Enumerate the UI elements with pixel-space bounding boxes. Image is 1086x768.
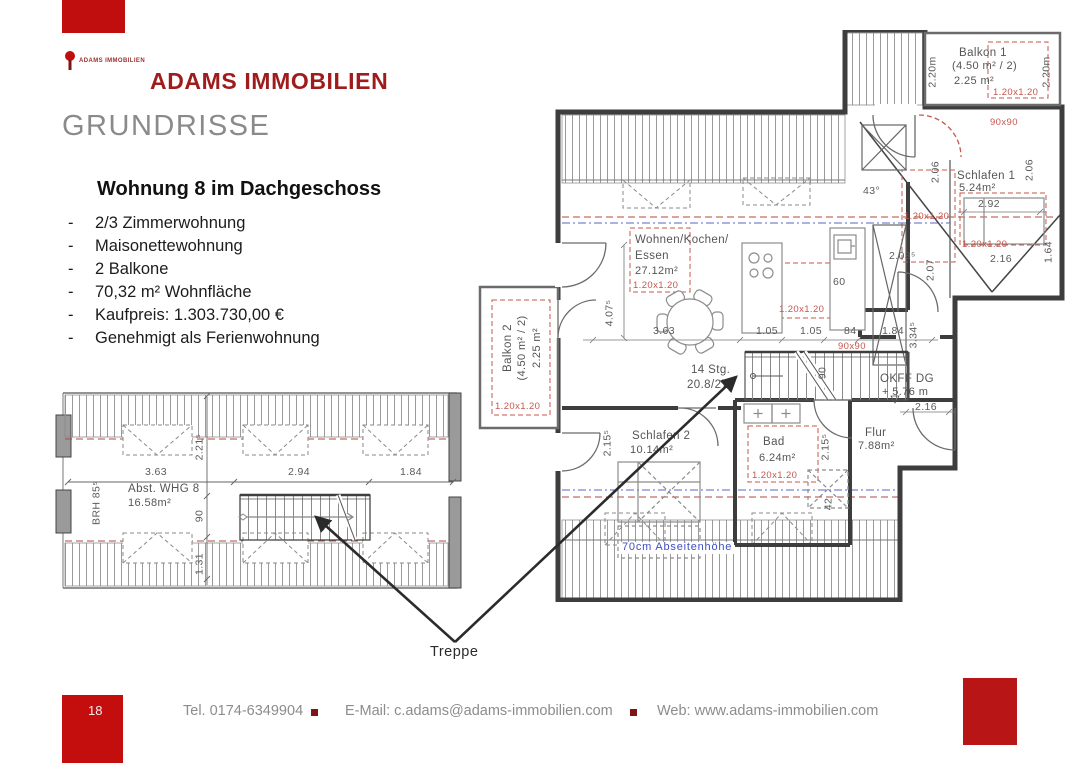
balkon2-area: 2.25 m²	[532, 328, 544, 368]
dim-label: 1.84	[400, 467, 422, 478]
footer-separator-icon	[630, 709, 637, 716]
listing-bullet: -Genehmigt als Ferienwohnung	[68, 329, 320, 348]
dim-label: 2.94	[288, 467, 310, 478]
dim-label: 2.20m	[927, 56, 938, 87]
window-size-label: 1.20x1.20	[904, 212, 949, 222]
footer-web: Web: www.adams-immobilien.com	[657, 703, 878, 719]
window-size-label: 1.20x1.20	[779, 305, 824, 315]
page-title: GRUNDRISSE	[62, 110, 270, 143]
dim-label: 90	[817, 367, 828, 379]
dim-label: 2.03⁵	[889, 251, 916, 262]
listing-bullet: -Maisonettewohnung	[68, 237, 243, 256]
room-area: 16.58m²	[128, 498, 171, 510]
dim-label: 42	[823, 498, 834, 510]
dim-label: 3.63	[653, 326, 675, 337]
bullet-marker: -	[68, 283, 95, 302]
bullet-text: Kaufpreis: 1.303.730,00 €	[95, 306, 284, 324]
dim-label: 3.63	[145, 467, 167, 478]
dim-label: 2.92	[978, 199, 1000, 210]
window-size-label: 1.20x1.20	[633, 281, 678, 291]
bullet-marker: -	[68, 260, 95, 279]
window-size-label: 1.20x1.20	[495, 402, 540, 412]
bullet-marker: -	[68, 329, 95, 348]
abseiten-note: 70cm Abseitenhöhe	[620, 542, 734, 554]
room-label-bad: Bad	[763, 436, 785, 448]
room-label-flur: Flur	[865, 427, 886, 439]
room-area: 27.12m²	[635, 266, 678, 278]
door-size-label: 90x90	[990, 118, 1018, 128]
window-size-label: 1.20x1.20	[993, 88, 1038, 98]
balkon2-size: (4.50 m² / 2)	[517, 315, 529, 380]
dim-label: 1.05	[756, 326, 778, 337]
room-area: 10.14m²	[630, 445, 673, 457]
dim-label: 4.07⁵	[604, 300, 615, 327]
kitchen-counters	[742, 228, 865, 333]
okff-label: OKFF DG	[880, 373, 934, 385]
dim-label: 3.34⁵	[908, 322, 919, 349]
footer-separator-icon	[311, 709, 318, 716]
room-label-balkon1: Balkon 1	[959, 47, 1007, 59]
brand-square-bottom	[963, 678, 1017, 745]
floorplan-lower: 3.63 2.94 1.84 2.21⁵ 90 1.31 Abst. WHG 8…	[55, 385, 465, 595]
balkon1-area: 2.25 m²	[954, 76, 994, 88]
room-label-wohnen: Wohnen/Kochen/	[635, 234, 729, 246]
bullet-text: Maisonettewohnung	[95, 237, 243, 255]
stairs-label2: 20.8/27⁵	[687, 379, 733, 391]
bed-schlafen1	[964, 198, 1044, 244]
treppe-label: Treppe	[430, 644, 478, 660]
listing-bullet: -2/3 Zimmerwohnung	[68, 214, 245, 233]
brand-square-top	[62, 0, 125, 33]
room-area: 7.88m²	[858, 441, 895, 453]
okff-height: + 5.76 m	[882, 387, 928, 399]
page-number: 18	[88, 703, 102, 718]
floorplan-main-drawing	[478, 30, 1066, 602]
dim-label: 1.64	[1043, 241, 1054, 263]
dim-label: 1.31	[194, 553, 205, 575]
dim-label: 90	[194, 510, 205, 522]
page-number-box: 18	[62, 695, 123, 763]
window-size-label: 1.20x1.20	[962, 240, 1007, 250]
floorplan-lower-drawing	[55, 385, 465, 595]
room-label-abstellraum: Abst. WHG 8	[128, 483, 200, 495]
dim-label: 2.15⁵	[820, 434, 831, 461]
balkon1-size: (4.50 m² / 2)	[952, 61, 1017, 73]
stairs-lower	[239, 495, 370, 540]
dim-label: 60	[833, 277, 845, 288]
bullet-marker: -	[68, 214, 95, 233]
bullet-text: Genehmigt als Ferienwohnung	[95, 329, 320, 347]
dim-label: 2.20m	[1041, 56, 1052, 87]
dim-label: 2.16	[990, 254, 1012, 265]
listing-heading: Wohnung 8 im Dachgeschoss	[97, 178, 381, 201]
dim-label: 1.05	[800, 326, 822, 337]
dim-label: 2.06	[930, 161, 941, 183]
dim-label: 2.07	[925, 259, 936, 281]
footer-email: E-Mail: c.adams@adams-immobilien.com	[345, 703, 613, 719]
bullet-text: 70,32 m² Wohnfläche	[95, 283, 252, 301]
map-pin-icon	[63, 50, 77, 72]
room-area: 5.24m²	[959, 183, 996, 195]
dim-label: 84	[844, 326, 856, 337]
dim-label: 1.84	[882, 326, 904, 337]
brh-label: BRH 85⁵	[91, 481, 102, 525]
window-size-label: 1.20x1.20	[752, 471, 797, 481]
room-label-wohnen2: Essen	[635, 250, 669, 262]
angle-label: 43°	[863, 186, 880, 197]
brand-title: ADAMS IMMOBILIEN	[150, 68, 388, 95]
listing-bullet: -70,32 m² Wohnfläche	[68, 283, 252, 302]
bullet-marker: -	[68, 237, 95, 256]
room-label-schlafen2: Schlafen 2	[632, 430, 690, 442]
dining-table	[657, 288, 723, 355]
listing-bullet: -2 Balkone	[68, 260, 168, 279]
bullet-text: 2/3 Zimmerwohnung	[95, 214, 245, 232]
brochure-page: ADAMS IMMOBILIEN ADAMS IMMOBILIEN GRUNDR…	[0, 0, 1086, 768]
room-label-balkon2: Balkon 2	[502, 324, 514, 372]
floorplan-main: Balkon 1 (4.50 m² / 2) 2.25 m² 1.20x1.20…	[478, 30, 1066, 602]
room-area: 6.24m²	[759, 453, 796, 465]
room-label-schlafen1: Schlafen 1	[957, 170, 1015, 182]
window-size-label: 90x90	[838, 342, 866, 352]
listing-bullet: -Kaufpreis: 1.303.730,00 €	[68, 306, 284, 325]
logo-caption: ADAMS IMMOBILIEN	[79, 58, 145, 64]
stairs-label: 14 Stg.	[691, 364, 730, 376]
bullet-marker: -	[68, 306, 95, 325]
dim-label: 2.21⁵	[194, 434, 205, 461]
bullet-text: 2 Balkone	[95, 260, 168, 278]
footer-tel: Tel. 0174-6349904	[183, 703, 303, 719]
dim-label: 2.16	[915, 402, 937, 413]
dim-label: 2.15⁵	[602, 430, 613, 457]
dim-label: 2.06	[1024, 159, 1035, 181]
